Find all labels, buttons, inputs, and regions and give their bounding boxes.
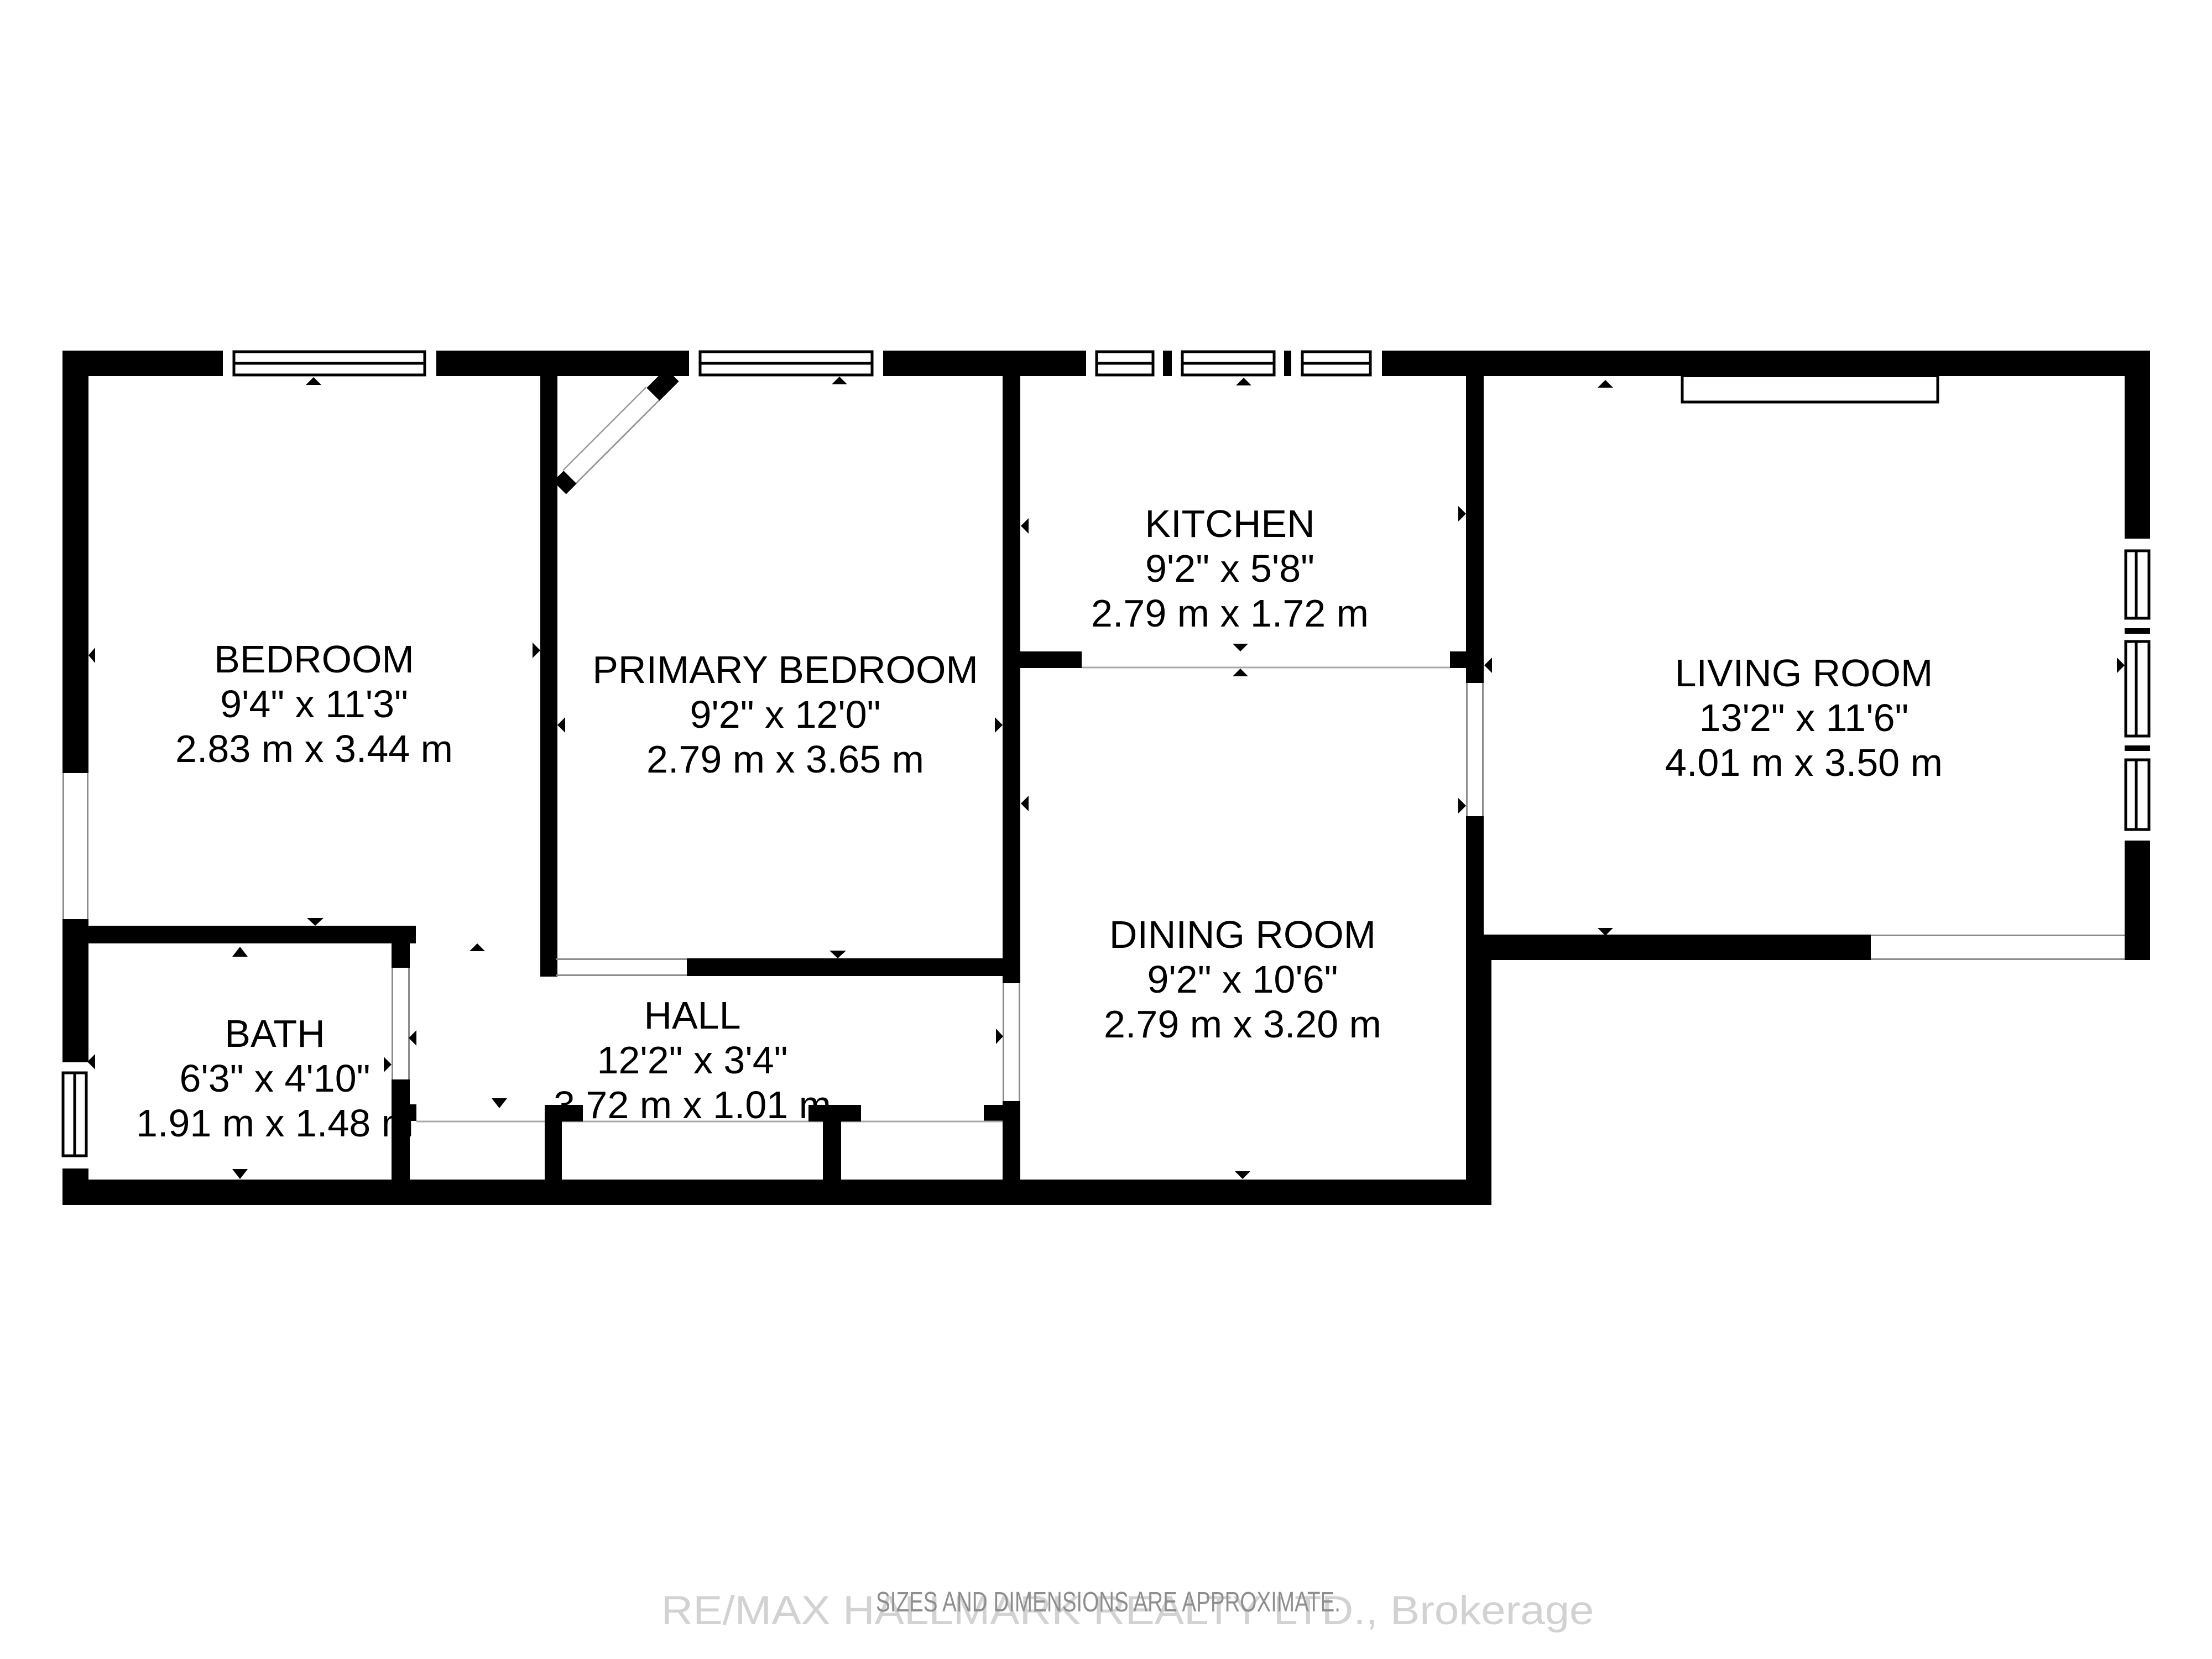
svg-text:LIVING ROOM: LIVING ROOM bbox=[1675, 651, 1933, 695]
svg-text:9'2" x 12'0": 9'2" x 12'0" bbox=[690, 693, 881, 736]
svg-text:SIZES AND DIMENSIONS ARE APPRO: SIZES AND DIMENSIONS ARE APPROXIMATE. bbox=[876, 1586, 1340, 1618]
svg-text:12'2" x 3'4": 12'2" x 3'4" bbox=[597, 1039, 788, 1082]
svg-text:9'2" x 5'8": 9'2" x 5'8" bbox=[1145, 547, 1314, 590]
svg-text:2.79 m x 1.72 m: 2.79 m x 1.72 m bbox=[1091, 592, 1369, 635]
svg-text:HALL: HALL bbox=[644, 994, 740, 1037]
svg-text:9'2" x 10'6": 9'2" x 10'6" bbox=[1147, 958, 1338, 1001]
svg-text:KITCHEN: KITCHEN bbox=[1145, 502, 1314, 545]
svg-text:6'3" x 4'10": 6'3" x 4'10" bbox=[180, 1057, 371, 1100]
svg-text:1.91 m x 1.48 m: 1.91 m x 1.48 m bbox=[136, 1102, 414, 1145]
svg-text:PRIMARY BEDROOM: PRIMARY BEDROOM bbox=[592, 648, 978, 691]
svg-text:2.79 m x 3.65 m: 2.79 m x 3.65 m bbox=[646, 738, 924, 781]
svg-text:2.79 m x 3.20 m: 2.79 m x 3.20 m bbox=[1104, 1003, 1381, 1046]
svg-text:9'4" x 11'3": 9'4" x 11'3" bbox=[220, 682, 408, 726]
svg-text:BEDROOM: BEDROOM bbox=[214, 638, 414, 681]
svg-text:4.01 m x 3.50 m: 4.01 m x 3.50 m bbox=[1665, 741, 1943, 784]
svg-text:BATH: BATH bbox=[225, 1012, 325, 1055]
svg-text:DINING ROOM: DINING ROOM bbox=[1109, 913, 1376, 956]
svg-text:3.72 m x 1.01 m: 3.72 m x 1.01 m bbox=[554, 1083, 831, 1126]
svg-text:13'2" x 11'6": 13'2" x 11'6" bbox=[1699, 696, 1909, 739]
svg-text:2.83 m x 3.44 m: 2.83 m x 3.44 m bbox=[175, 727, 453, 770]
